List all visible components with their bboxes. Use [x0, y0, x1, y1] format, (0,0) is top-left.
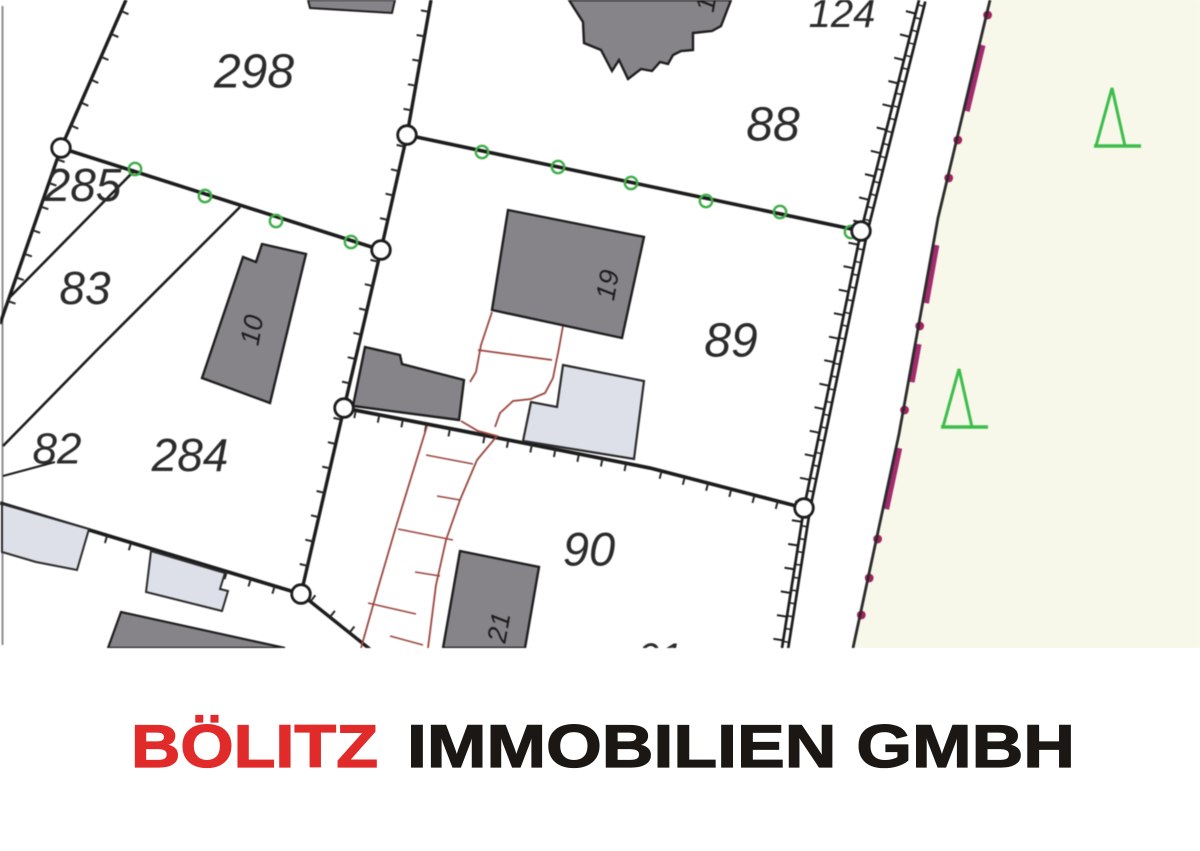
svg-text:82: 82: [33, 425, 82, 474]
svg-text:89: 89: [704, 315, 757, 368]
svg-text:90: 90: [563, 523, 615, 576]
svg-text:88: 88: [746, 99, 800, 152]
svg-text:IMMOBILIEN GMBH: IMMOBILIEN GMBH: [407, 713, 1075, 780]
svg-text:124: 124: [809, 0, 876, 36]
svg-text:21: 21: [481, 610, 516, 646]
svg-text:298: 298: [213, 46, 294, 99]
svg-text:10: 10: [235, 313, 270, 348]
svg-text:284: 284: [151, 429, 229, 481]
svg-text:91: 91: [638, 636, 683, 648]
svg-text:83: 83: [59, 262, 111, 314]
svg-text:BÖLITZ: BÖLITZ: [131, 713, 378, 780]
svg-text:19: 19: [590, 268, 625, 303]
svg-text:285: 285: [44, 159, 122, 211]
